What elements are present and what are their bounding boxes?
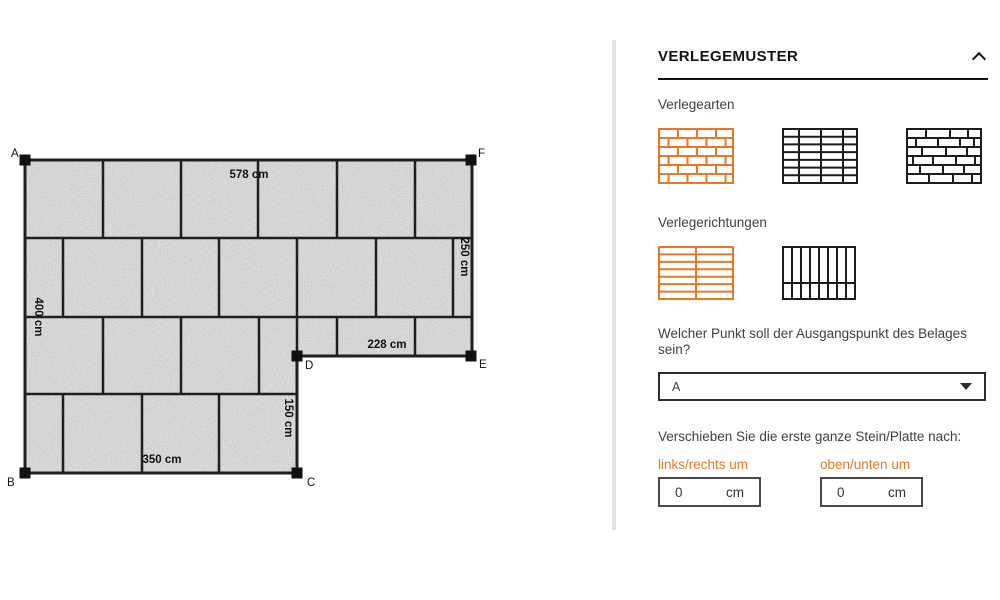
corner-label-f: F [478,148,485,160]
corner-label-a: A [11,148,19,160]
shift-y-unit: cm [888,485,906,500]
direction-option-horizontal[interactable] [658,246,734,300]
shift-y-box: cm [820,477,923,507]
corner-marker-c [292,468,303,479]
pattern-option-stack-bond[interactable] [782,128,858,184]
shift-x-unit: cm [726,485,744,500]
verlegemuster-panel: VERLEGEMUSTER Verlegearten [658,48,988,507]
dimension-label-left: 400 cm [32,297,44,336]
dimension-label-bottom: 350 cm [142,454,181,466]
corner-marker-e [466,351,477,362]
horizontal-direction-icon [658,246,734,300]
shift-y-group: oben/unten um cm [820,457,982,507]
direction-option-vertical[interactable] [782,246,856,300]
origin-select-value: A [672,380,680,394]
pattern-option-wild-bond[interactable] [906,128,982,184]
verlegearten-options [658,128,988,184]
panel-title: VERLEGEMUSTER [658,48,798,65]
panel-divider [612,40,616,530]
verlegearten-label: Verlegearten [658,97,988,112]
vertical-direction-icon [782,246,856,300]
dropdown-arrow-icon [960,383,972,390]
dimension-label-inner-top: 228 cm [367,339,406,351]
shift-x-input[interactable] [675,485,705,500]
verlegerichtungen-label: Verlegerichtungen [658,215,988,230]
corner-label-d: D [305,360,313,372]
corner-label-e: E [479,359,487,371]
chevron-up-icon[interactable] [972,50,986,64]
shift-y-label: oben/unten um [820,457,982,472]
shift-y-input[interactable] [837,485,867,500]
shift-x-group: links/rechts um cm [658,457,820,507]
floor-plan-canvas: A F E D C B 578 cm 250 cm 400 cm 228 cm … [0,0,520,560]
dimension-label-right: 250 cm [458,237,470,276]
running-bond-icon [658,128,734,184]
corner-marker-a [20,155,31,166]
corner-marker-d [292,351,303,362]
stack-bond-icon [782,128,858,184]
shift-fields: links/rechts um cm oben/unten um cm [658,457,988,507]
origin-select[interactable]: A [658,372,986,401]
verlegerichtungen-options [658,246,988,300]
corner-label-b: B [7,477,15,489]
corner-label-c: C [307,477,315,489]
corner-marker-b [20,468,31,479]
dimension-label-inner-right: 150 cm [282,398,294,437]
pattern-option-running-bond[interactable] [658,128,734,184]
dimension-label-top: 578 cm [229,169,268,181]
corner-marker-f [466,155,477,166]
shift-x-box: cm [658,477,761,507]
shift-x-label: links/rechts um [658,457,820,472]
origin-question: Welcher Punkt soll der Ausgangspunkt des… [658,326,980,358]
shift-instruction: Verschieben Sie die erste ganze Stein/Pl… [658,429,980,445]
panel-header: VERLEGEMUSTER [658,48,988,80]
wild-bond-icon [906,128,982,184]
